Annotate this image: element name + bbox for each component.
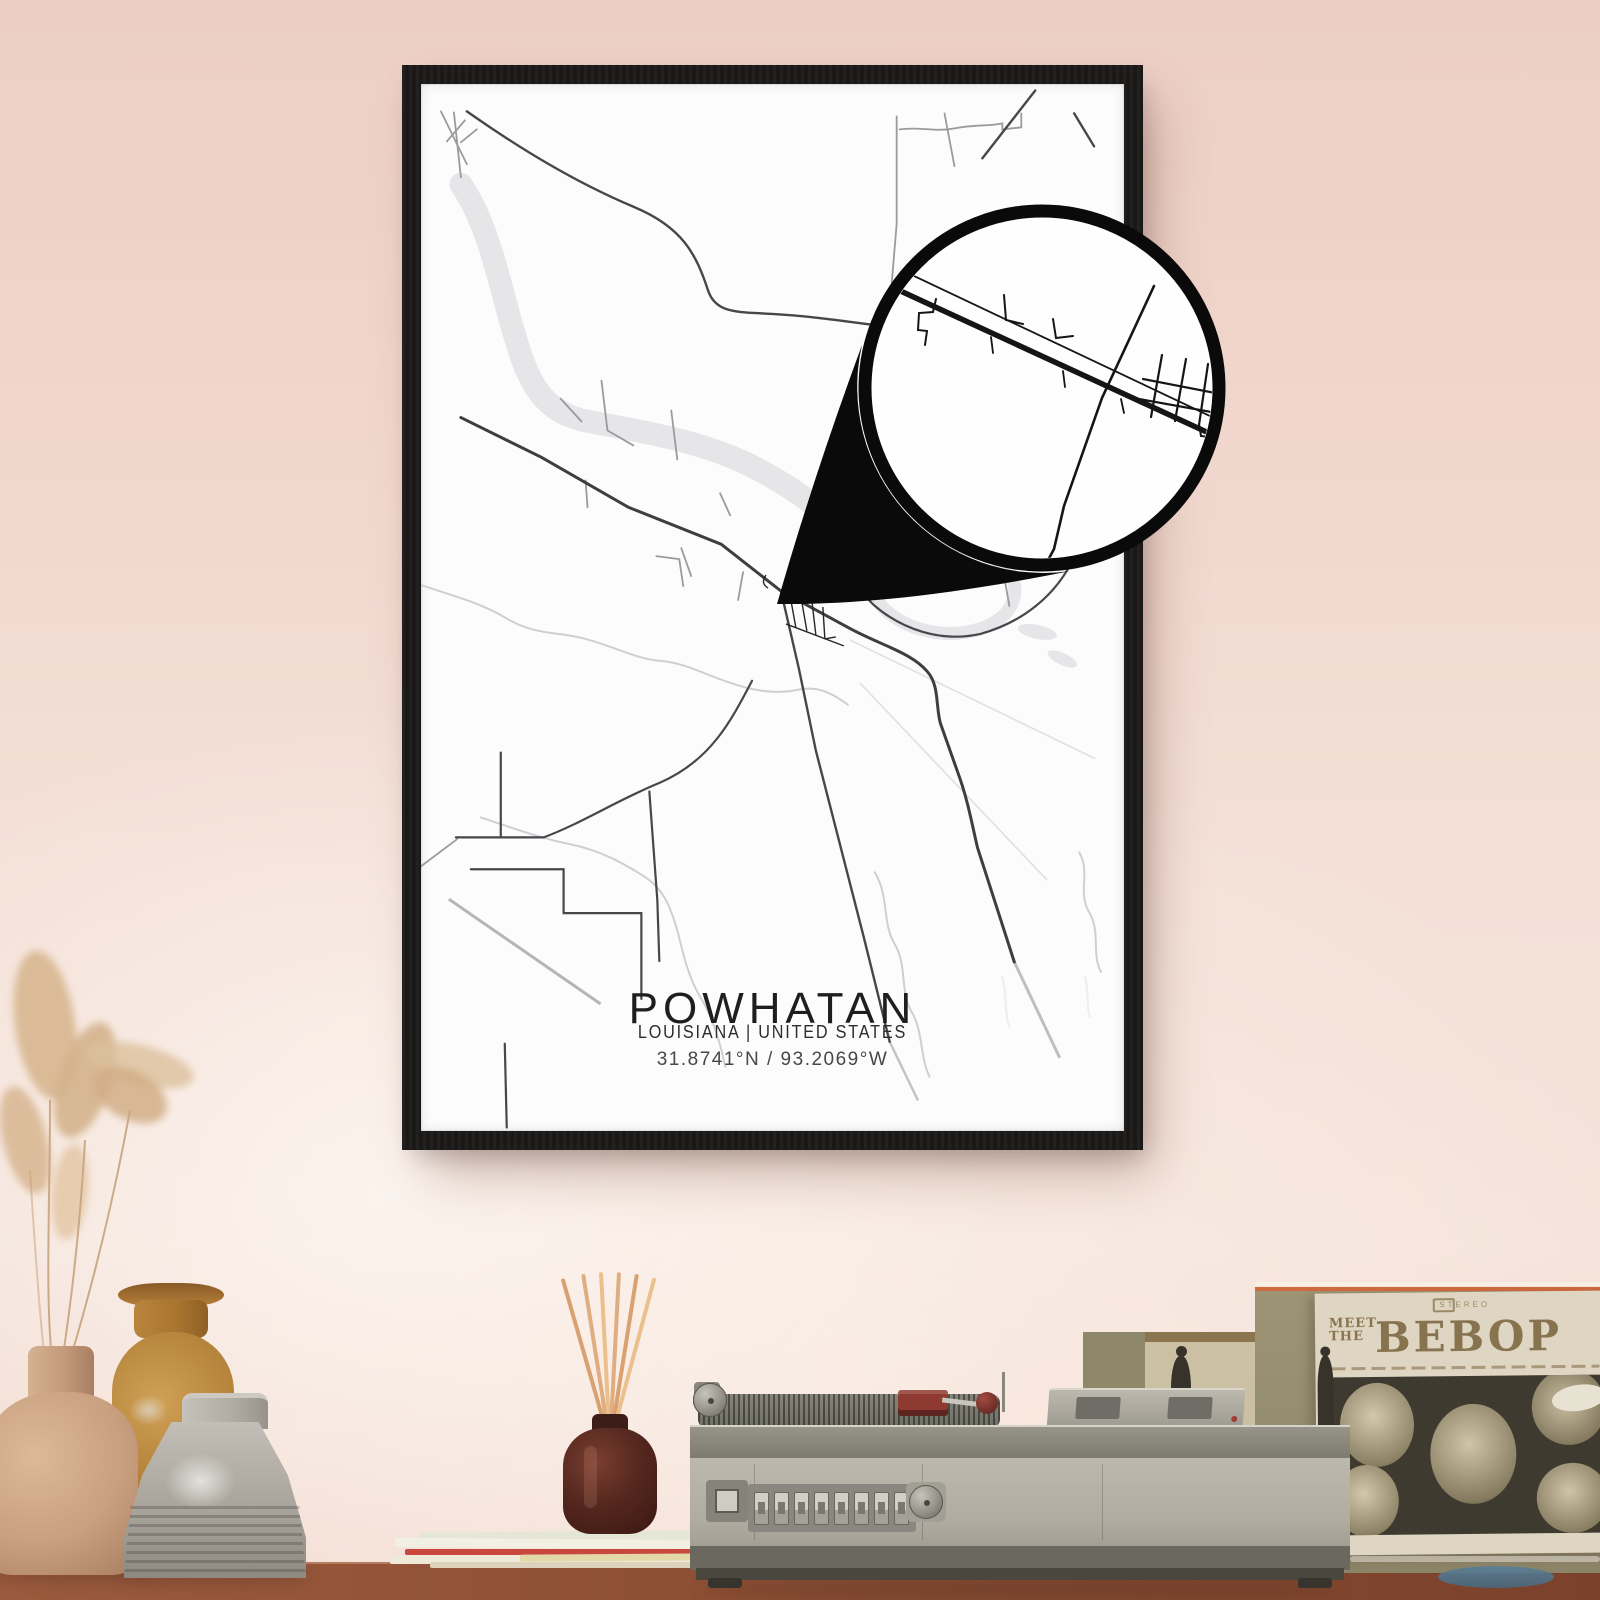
deck-indicator [1231,1416,1237,1422]
preset-button [834,1492,849,1525]
album-photo [1326,1375,1600,1536]
deck-pad [1075,1397,1121,1419]
album-pretitle-line2: THE [1329,1330,1377,1344]
album-face [1536,1463,1600,1534]
player-foot [1298,1578,1332,1588]
preset-button [754,1492,769,1525]
tuning-knob [693,1383,727,1417]
album-pretitle: MEET THE [1329,1317,1377,1344]
preset-button [854,1492,869,1525]
map-art [421,84,1124,1131]
tan-jug [0,1392,138,1575]
gray-vase-ribs [124,1500,306,1576]
blue-coaster [1438,1566,1554,1588]
preset-button [774,1492,789,1525]
album-logo [1433,1298,1455,1312]
player-plinth [696,1568,1344,1580]
preset-button [794,1492,809,1525]
tonearm-pivot [976,1392,998,1414]
panel-divider [1102,1464,1103,1540]
preset-button [874,1492,889,1525]
preset-button [814,1492,829,1525]
album-title: BEBOP [1375,1311,1562,1362]
album-face [1430,1403,1517,1504]
poster-paper: POWHATAN LOUISIANA | UNITED STATES 31.87… [421,84,1124,1131]
antenna [1002,1372,1005,1412]
table-reflection [1350,1556,1600,1562]
record-player [690,1380,1350,1588]
poster-frame: POWHATAN LOUISIANA | UNITED STATES 31.87… [402,65,1143,1150]
room-scene: POWHATAN LOUISIANA | UNITED STATES 31.87… [0,0,1600,1600]
player-foot [708,1578,742,1588]
reed-diffuser-bottle [563,1428,657,1534]
power-button [706,1480,748,1522]
preset-button-bar [748,1484,916,1532]
deck-pad [1167,1397,1213,1419]
tan-jug-neck [28,1346,94,1398]
player-lower-band [690,1546,1350,1570]
album-face [1340,1383,1415,1468]
volume-knob [909,1485,943,1519]
cassette-deck [1047,1388,1246,1428]
poster-coordinates: 31.8741°N / 93.2069°W [421,1049,1124,1071]
album-subtext [1331,1365,1599,1371]
album-cover: STEREO MEET THE BEBOP [1315,1290,1600,1555]
map-river [461,184,1079,671]
album-header-text: STEREO [1315,1298,1600,1310]
poster-subtitle: LOUISIANA | UNITED STATES [456,1022,1089,1043]
diffuser-highlight [584,1446,597,1508]
tonearm-headshell [898,1390,948,1416]
knob-bezel [906,1482,946,1522]
player-top-band [690,1425,1350,1461]
